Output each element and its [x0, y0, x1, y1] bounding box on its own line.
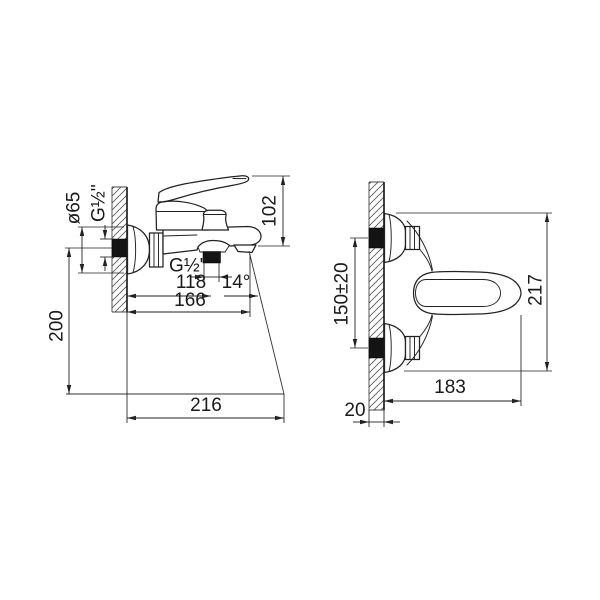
wall-hatch-right: [369, 182, 384, 410]
dim-label-150: 150±20: [332, 262, 353, 325]
dim-label-183: 183: [434, 377, 466, 398]
connection-nut-bottom: [406, 337, 420, 360]
dim-label-217: 217: [526, 274, 547, 306]
technical-drawing-page: ø65 G½'' 200 102: [0, 0, 600, 600]
lever-end-view: [414, 272, 522, 315]
dim-label-166: 166: [174, 290, 206, 311]
dim-label-216: 216: [190, 395, 222, 416]
right-front-view: 150±20 217 183 20: [332, 182, 553, 427]
dim-label-102: 102: [260, 195, 281, 227]
dim-216: 216: [127, 312, 284, 423]
spout-lip: [234, 245, 256, 253]
dim-label-escutcheon-diameter: ø65: [64, 192, 85, 225]
escutcheon: [128, 225, 150, 274]
dim-label-14deg: 14°: [222, 272, 251, 293]
dim-wall-thread: G½'': [89, 184, 115, 271]
left-side-view: ø65 G½'' 200 102: [47, 176, 291, 423]
dim-label-wall-thread: G½'': [89, 184, 110, 222]
outlet-boss: [198, 246, 229, 252]
dim-label-20: 20: [344, 400, 365, 421]
connection-nut-top: [406, 227, 420, 250]
inlet-thread-top: [369, 228, 385, 248]
faucet-dimension-drawing: ø65 G½'' 200 102: [0, 0, 600, 600]
dim-label-200: 200: [47, 310, 68, 342]
wall-inlet-thread: [112, 239, 128, 257]
connection-nut: [150, 233, 164, 267]
diverter-knob: [202, 210, 229, 230]
cartridge-cap: [156, 201, 209, 230]
dim-angle-14: 14°: [222, 272, 258, 296]
escutcheon-bottom: [385, 324, 406, 373]
dim-150: 150±20: [332, 238, 369, 348]
lever-handle: [158, 176, 249, 202]
inlet-thread-bottom: [369, 338, 385, 358]
stream-angle-line: [249, 251, 284, 394]
escutcheon-top: [385, 214, 406, 263]
dim-200: 200: [47, 248, 113, 394]
